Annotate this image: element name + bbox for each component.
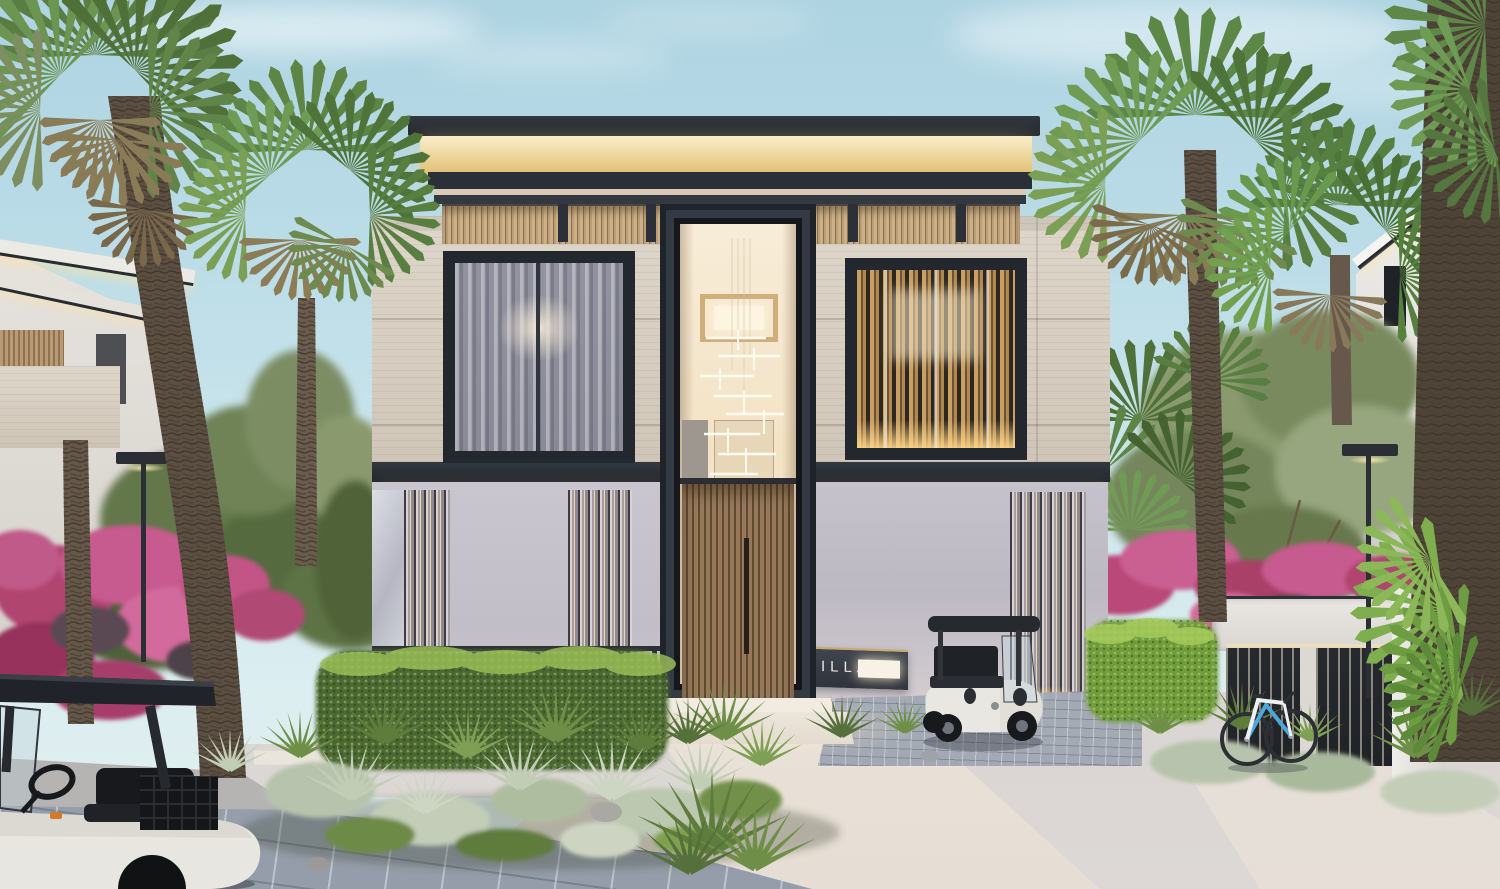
low-palm-fronds-right xyxy=(1328,493,1483,766)
scene-villa-rendering: VILLA xyxy=(0,0,1500,889)
foreground xyxy=(0,0,1500,889)
front-hedge xyxy=(316,646,676,770)
cart-cargo-basket xyxy=(140,776,218,830)
golf-cart-parked xyxy=(923,616,1043,751)
garage-hedge xyxy=(1084,618,1218,722)
golf-cart-foreground xyxy=(0,674,260,889)
